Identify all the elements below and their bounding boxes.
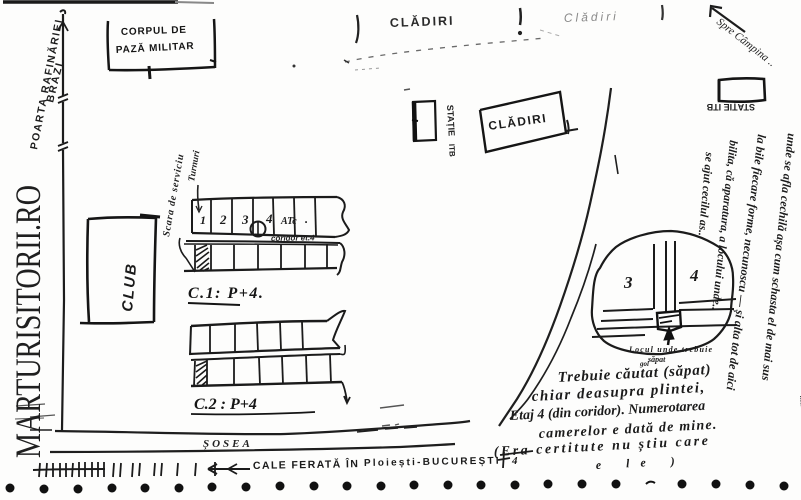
svg-text:CLĂDIRI: CLĂDIRI <box>390 13 455 30</box>
svg-text:4: 4 <box>689 266 699 285</box>
svg-text:CLĂDIRI: CLĂDIRI <box>487 110 548 133</box>
svg-text:ATc: ATc <box>280 216 297 227</box>
svg-text:Turnuri: Turnuri <box>187 150 202 183</box>
svg-text:Ploiești-BUCUREȘTI: Ploiești-BUCUREȘTI <box>364 456 501 469</box>
svg-text:.: . <box>305 212 308 226</box>
svg-text:CALE FERATĂ ÎN: CALE FERATĂ ÎN <box>253 457 360 472</box>
svg-text:Clădiri: Clădiri <box>564 9 619 25</box>
svg-text:2: 2 <box>219 212 227 227</box>
svg-text:STAȚIE: STAȚIE <box>445 105 457 137</box>
svg-text:C.1: P+4.: C.1: P+4. <box>188 285 264 302</box>
svg-text:PAZĂ MILITAR: PAZĂ MILITAR <box>115 39 194 56</box>
svg-text:Scara de serviciu: Scara de serviciu <box>161 153 186 238</box>
svg-text:CLUB: CLUB <box>119 261 140 312</box>
svg-text:Locul unde trebuie: Locul unde trebuie <box>628 345 713 354</box>
svg-text:MARTURISITORII.RO: MARTURISITORII.RO <box>8 185 48 458</box>
svg-text:3: 3 <box>623 273 633 292</box>
svg-text:4: 4 <box>265 211 273 226</box>
svg-text:CORPUL DE: CORPUL DE <box>121 25 187 38</box>
svg-text:coridor et.4: coridor et.4 <box>271 233 315 243</box>
svg-text:Spre Câmpina ..: Spre Câmpina .. <box>714 16 777 69</box>
svg-text:1: 1 <box>200 213 206 227</box>
svg-text:săpat: săpat <box>647 355 666 364</box>
svg-text:C.2 : P+4: C.2 : P+4 <box>194 396 257 413</box>
svg-text:3: 3 <box>241 212 249 227</box>
svg-text:ȘOSEA: ȘOSEA <box>203 438 253 450</box>
svg-text:STAȚIE ITB: STAȚIE ITB <box>706 102 755 112</box>
svg-text:ITB: ITB <box>447 144 457 158</box>
svg-text:se ajut cecilul as..: se ajut cecilul as.. <box>696 151 715 237</box>
svg-text:e le ): e le ) <box>595 453 686 472</box>
